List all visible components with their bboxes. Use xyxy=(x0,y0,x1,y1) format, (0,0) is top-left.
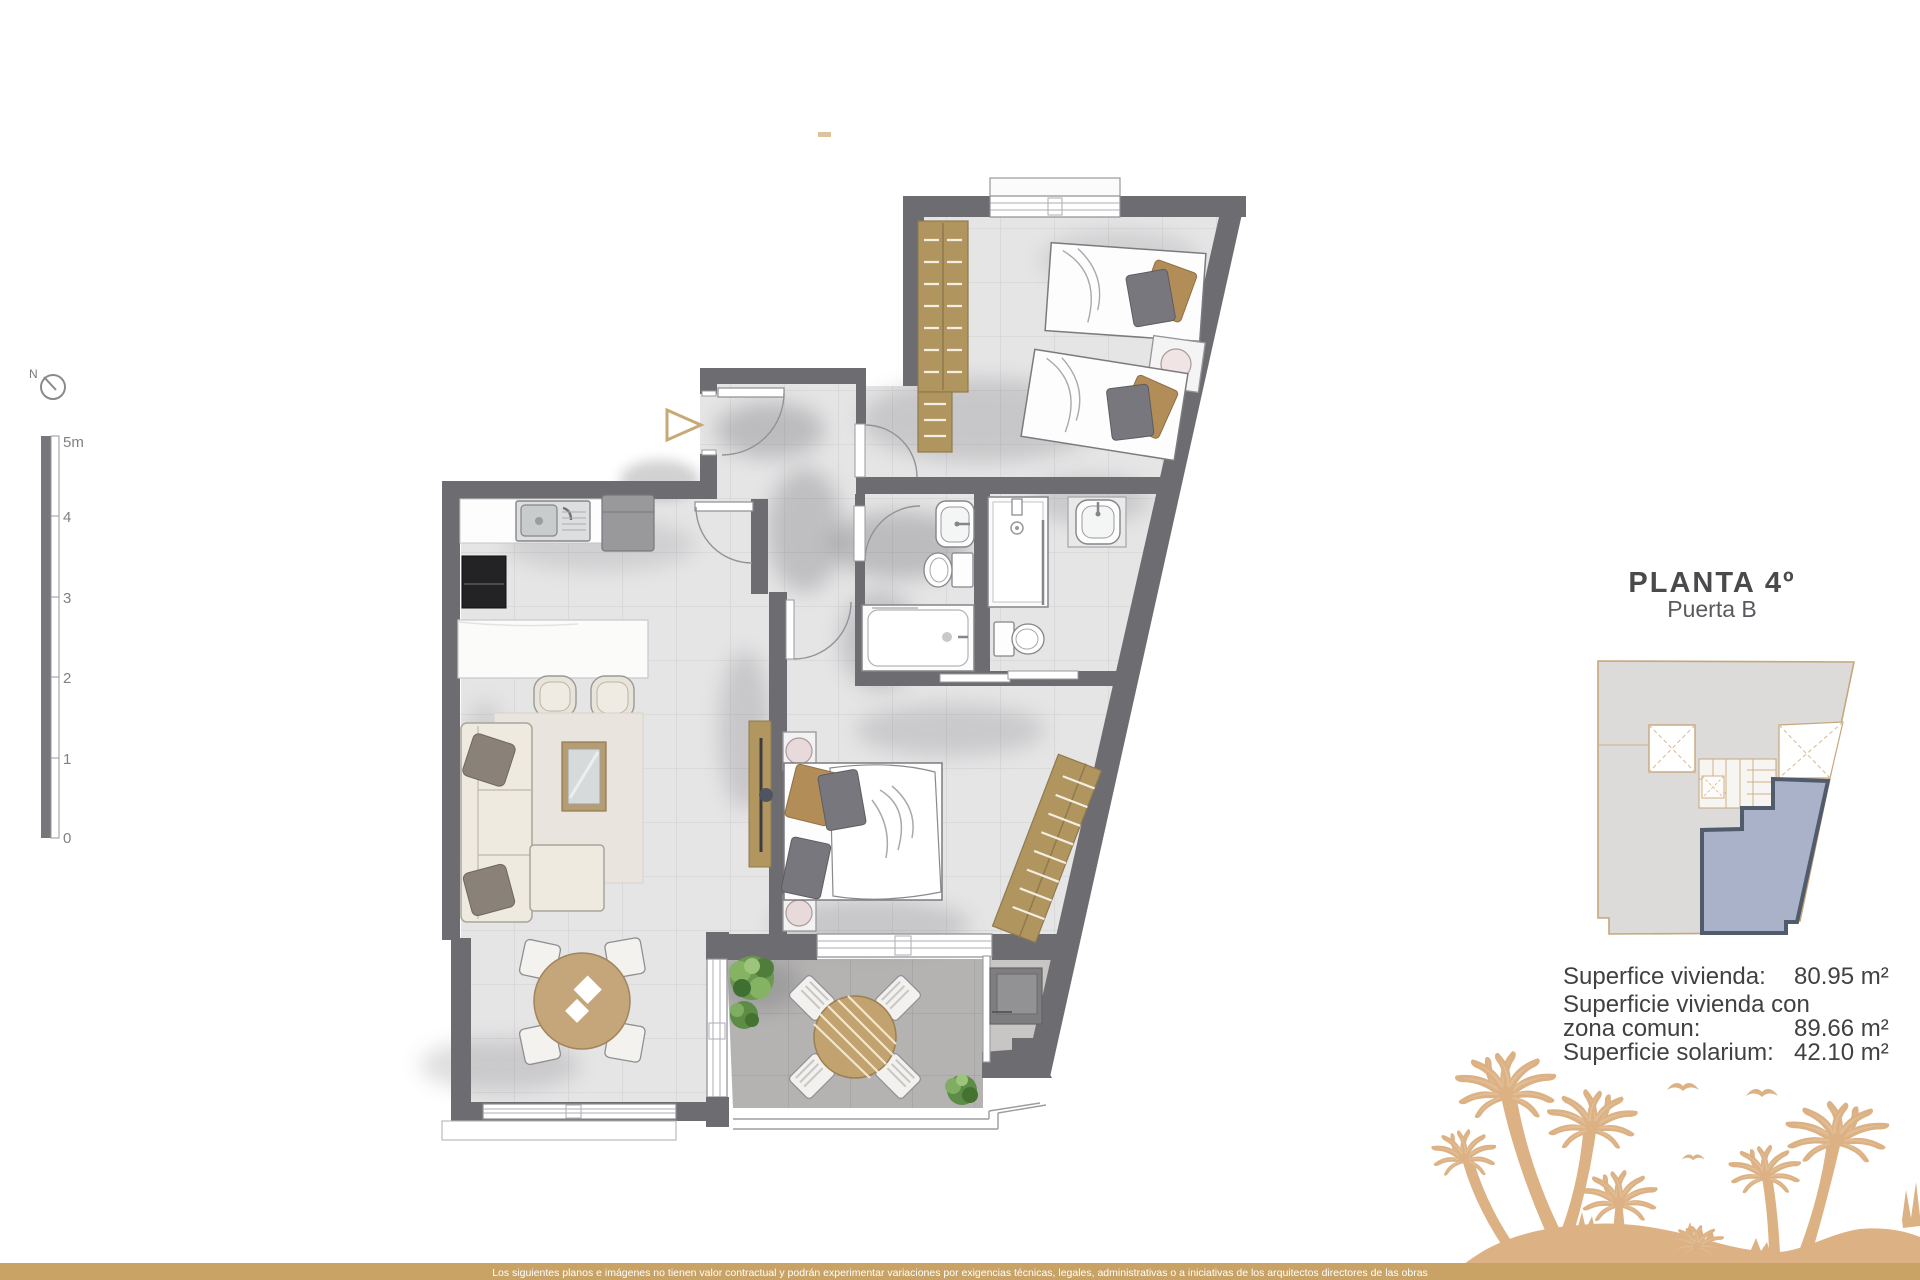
svg-text:Puerta B: Puerta B xyxy=(1667,596,1757,622)
svg-text:2: 2 xyxy=(63,670,71,687)
svg-text:80.95 m²: 80.95 m² xyxy=(1794,963,1889,990)
svg-text:PLANTA 4º: PLANTA 4º xyxy=(1628,567,1795,599)
svg-text:42.10 m²: 42.10 m² xyxy=(1794,1039,1889,1066)
svg-text:Superfice vivienda:: Superfice vivienda: xyxy=(1563,963,1766,990)
svg-text:Superficie solarium:: Superficie solarium: xyxy=(1563,1039,1774,1066)
svg-text:89.66 m²: 89.66 m² xyxy=(1794,1015,1889,1042)
svg-text:3: 3 xyxy=(63,590,71,607)
svg-text:4: 4 xyxy=(63,509,71,526)
svg-text:1: 1 xyxy=(63,751,71,768)
svg-text:N: N xyxy=(29,367,38,381)
svg-text:zona comun:: zona comun: xyxy=(1563,1015,1700,1042)
svg-text:Los siguientes planos e imágen: Los siguientes planos e imágenes no tien… xyxy=(492,1267,1428,1279)
svg-text:Superficie vivienda con: Superficie vivienda con xyxy=(1563,991,1810,1018)
svg-text:5m: 5m xyxy=(63,434,84,451)
svg-text:0: 0 xyxy=(63,830,71,847)
